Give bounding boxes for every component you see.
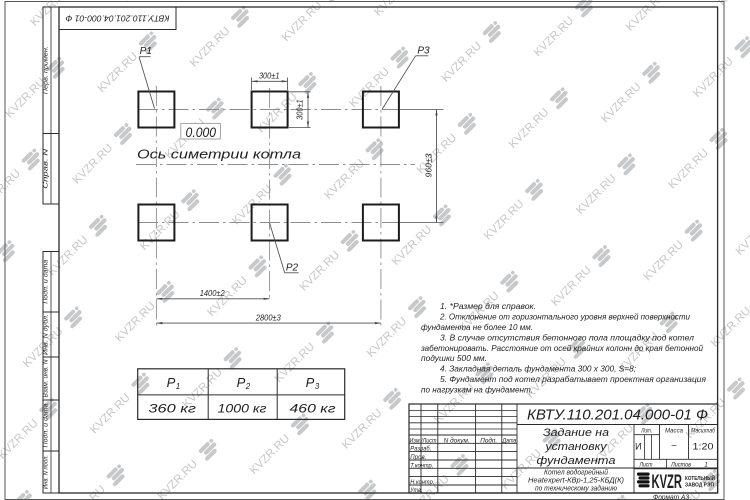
svg-text:Инв. N дубл.: Инв. N дубл. — [42, 314, 50, 355]
svg-text:1400±2: 1400±2 — [200, 289, 226, 298]
svg-text:1: 1 — [704, 461, 708, 468]
svg-text:Взам. инв. N: Взам. инв. N — [43, 359, 50, 397]
svg-text:фундамента не более 10 мм.: фундамента не более 10 мм. — [421, 322, 533, 332]
svg-text:забетонировать. Расстояние от: забетонировать. Расстояние от осей крайн… — [420, 343, 703, 353]
svg-text:ЗАВОД РЭП: ЗАВОД РЭП — [685, 483, 714, 489]
svg-text:Р: Р — [237, 375, 246, 390]
svg-text:Разраб.: Разраб. — [410, 445, 431, 453]
svg-text:Пров.: Пров. — [410, 454, 426, 461]
svg-text:1: 1 — [176, 382, 180, 391]
svg-text:фундамента: фундамента — [537, 455, 616, 467]
svg-text:по нагрузкам на фундамент.: по нагрузкам на фундамент. — [421, 385, 533, 395]
svg-text:Лист: Лист — [639, 461, 653, 468]
svg-text:–: – — [671, 440, 676, 450]
svg-text:КВТУ.110.201.04.000-01 Ф: КВТУ.110.201.04.000-01 Ф — [527, 407, 708, 424]
svg-text:И: И — [635, 441, 641, 451]
svg-text:P3: P3 — [417, 46, 430, 57]
svg-text:Т.контр.: Т.контр. — [410, 462, 433, 469]
svg-text:0.000: 0.000 — [186, 124, 217, 140]
svg-text:300±1: 300±1 — [296, 99, 305, 120]
svg-text:Подп. и дата: Подп. и дата — [42, 259, 50, 303]
svg-text:300±1: 300±1 — [259, 72, 280, 81]
svg-text:Листов: Листов — [670, 461, 691, 468]
svg-text:Р: Р — [167, 375, 176, 390]
svg-text:460 кг: 460 кг — [290, 402, 336, 416]
svg-text:КОТЕЛЬНЫЙ: КОТЕЛЬНЫЙ — [685, 474, 715, 482]
svg-text:Инв. N подл.: Инв. N подл. — [42, 455, 50, 489]
svg-text:P2: P2 — [286, 262, 299, 273]
svg-text:2. Отклонение от горизонтальн: 2. Отклонение от горизонтального уровня … — [439, 311, 690, 321]
svg-text:KVZR: KVZR — [652, 472, 683, 493]
svg-text:Перв. примен.: Перв. примен. — [43, 46, 50, 94]
svg-text:Справ. N: Справ. N — [43, 148, 50, 189]
svg-text:Подп. и дата: Подп. и дата — [42, 403, 50, 447]
svg-text:2: 2 — [245, 382, 251, 391]
svg-text:3: 3 — [315, 382, 320, 391]
svg-text:1. *Размер для справок.: 1. *Размер для справок. — [440, 301, 536, 311]
svg-text:1:20: 1:20 — [693, 442, 714, 453]
svg-text:Подп.: Подп. — [480, 436, 497, 444]
svg-text:4. Закладная деталь фундамент: 4. Закладная деталь фундамента 300 x 300… — [440, 364, 637, 374]
svg-text:Утв.: Утв. — [409, 487, 422, 494]
svg-text:подушки 500 мм.: подушки 500 мм. — [421, 353, 487, 363]
svg-text:Масштаб: Масштаб — [691, 426, 715, 434]
svg-text:2800±3: 2800±3 — [255, 314, 281, 323]
svg-text:Р: Р — [306, 375, 315, 390]
svg-text:Ось симетрии котла: Ось симетрии котла — [137, 148, 301, 162]
svg-text:Формат А3: Формат А3 — [653, 492, 690, 500]
svg-text:Масса: Масса — [665, 427, 683, 434]
svg-text:Н.контр.: Н.контр. — [410, 479, 434, 486]
svg-text:Задание на: Задание на — [543, 427, 609, 439]
svg-text:5. Фундамент под котел разраб: 5. Фундамент под котел разрабатывает про… — [440, 374, 707, 384]
svg-text:Дата: Дата — [502, 437, 517, 444]
svg-text:1000 кг: 1000 кг — [218, 402, 267, 416]
svg-text:Котел водогрейный: Котел водогрейный — [544, 468, 608, 476]
svg-text:Лит.: Лит. — [640, 427, 652, 434]
svg-text:по техническому заданию: по техническому заданию — [535, 484, 618, 492]
svg-text:КВТУ.110.201.04.000-01 Ф: КВТУ.110.201.04.000-01 Ф — [65, 14, 169, 24]
svg-text:960±3: 960±3 — [425, 153, 434, 178]
svg-text:3. В случае отсутствия бетонн: 3. В случае отсутствия бетонного пола пл… — [440, 332, 694, 342]
svg-text:установку: установку — [544, 441, 608, 453]
svg-text:Изм./Лист: Изм./Лист — [410, 437, 438, 444]
svg-text:360 кг: 360 кг — [148, 402, 196, 416]
svg-text:N докум.: N докум. — [444, 436, 470, 444]
svg-text:Heatexpert-КВр-1,25-КБД(К): Heatexpert-КВр-1,25-КБД(К) — [528, 477, 624, 484]
svg-text:P1: P1 — [140, 46, 152, 57]
